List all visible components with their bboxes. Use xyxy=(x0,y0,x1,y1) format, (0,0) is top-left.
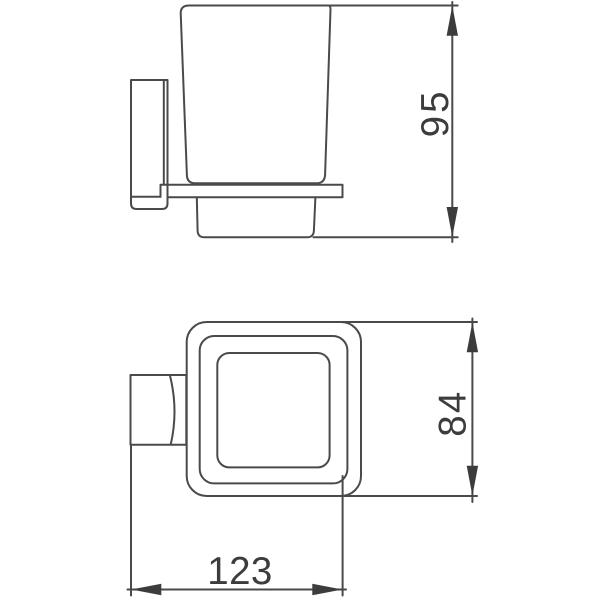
svg-text:123: 123 xyxy=(207,550,272,593)
svg-text:95: 95 xyxy=(414,91,457,137)
svg-text:84: 84 xyxy=(432,392,475,437)
